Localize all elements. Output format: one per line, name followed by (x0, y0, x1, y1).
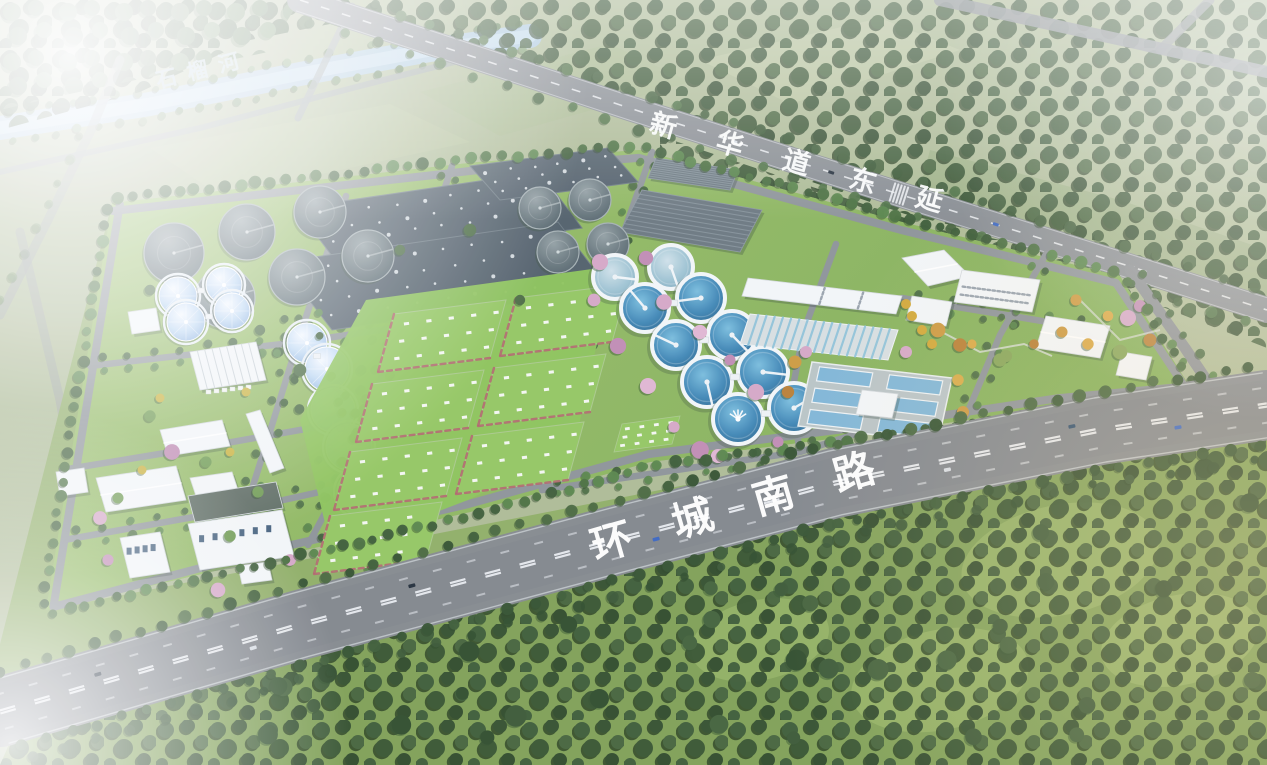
aerial-rendering-page: 石榴河 新华道东延 环城南路 (0, 0, 1267, 765)
haze-veil (0, 0, 1267, 765)
wastewater-plant-aerial-rendering: 石榴河 新华道东延 环城南路 (0, 0, 1267, 765)
layer-haze (0, 0, 1267, 765)
